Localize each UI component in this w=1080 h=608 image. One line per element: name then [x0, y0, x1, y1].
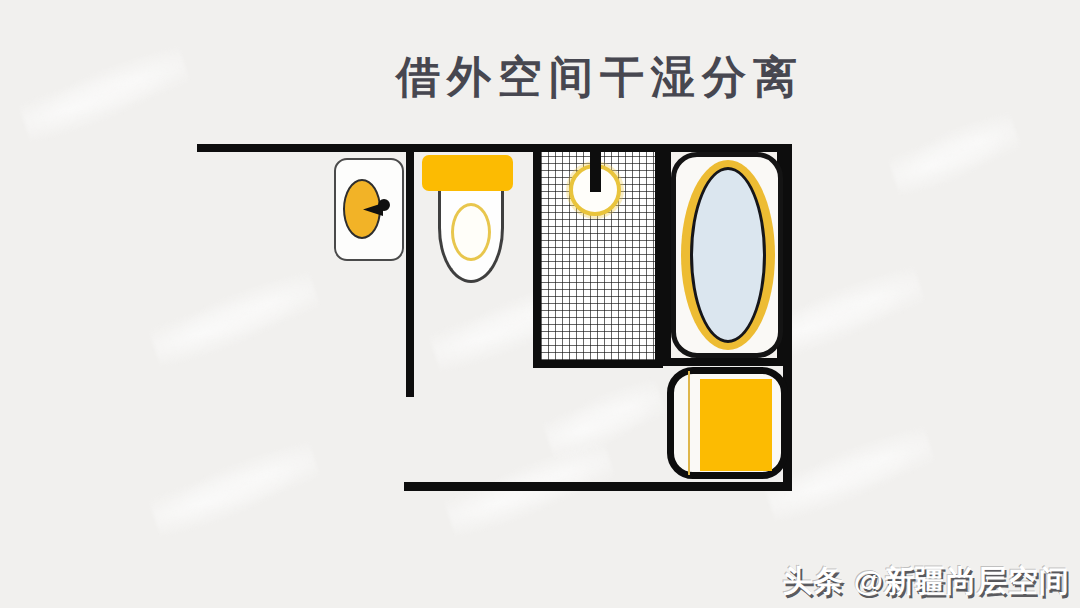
- wall-divider: [406, 144, 414, 397]
- wall-bottom: [404, 482, 792, 491]
- toilet-tank-icon: [422, 155, 513, 191]
- washing-machine-detail-line: [688, 371, 690, 475]
- page-title: 借外空间干湿分离: [396, 48, 804, 107]
- watermark-credit: 头条 @新疆尚层空间: [782, 561, 1070, 602]
- faint-watermark-smudge: [540, 378, 670, 463]
- washing-machine-door-icon: [700, 379, 772, 471]
- faint-watermark-smudge: [146, 440, 323, 540]
- faint-watermark-smudge: [16, 45, 193, 145]
- faint-watermark-smudge: [885, 111, 1024, 199]
- poster: 借外空间干湿分离 头条 @新疆尚层空间: [0, 0, 1080, 608]
- toilet-seat-icon: [451, 203, 491, 261]
- faint-watermark-smudge: [146, 270, 323, 370]
- faucet-icon: [378, 199, 390, 211]
- bathtub-water-icon: [690, 167, 766, 343]
- shower-pipe-icon: [590, 144, 601, 192]
